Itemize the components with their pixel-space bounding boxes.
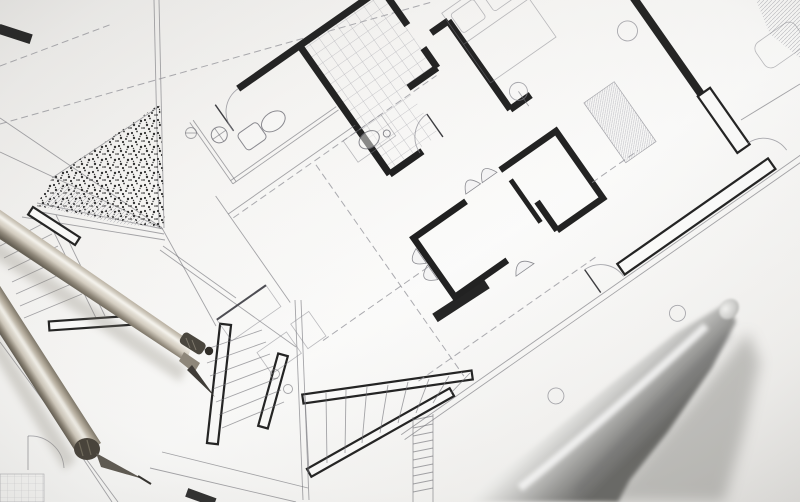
blueprint-photo — [0, 0, 800, 502]
vignette — [0, 0, 800, 502]
blueprint-photo-canvas — [0, 0, 800, 502]
